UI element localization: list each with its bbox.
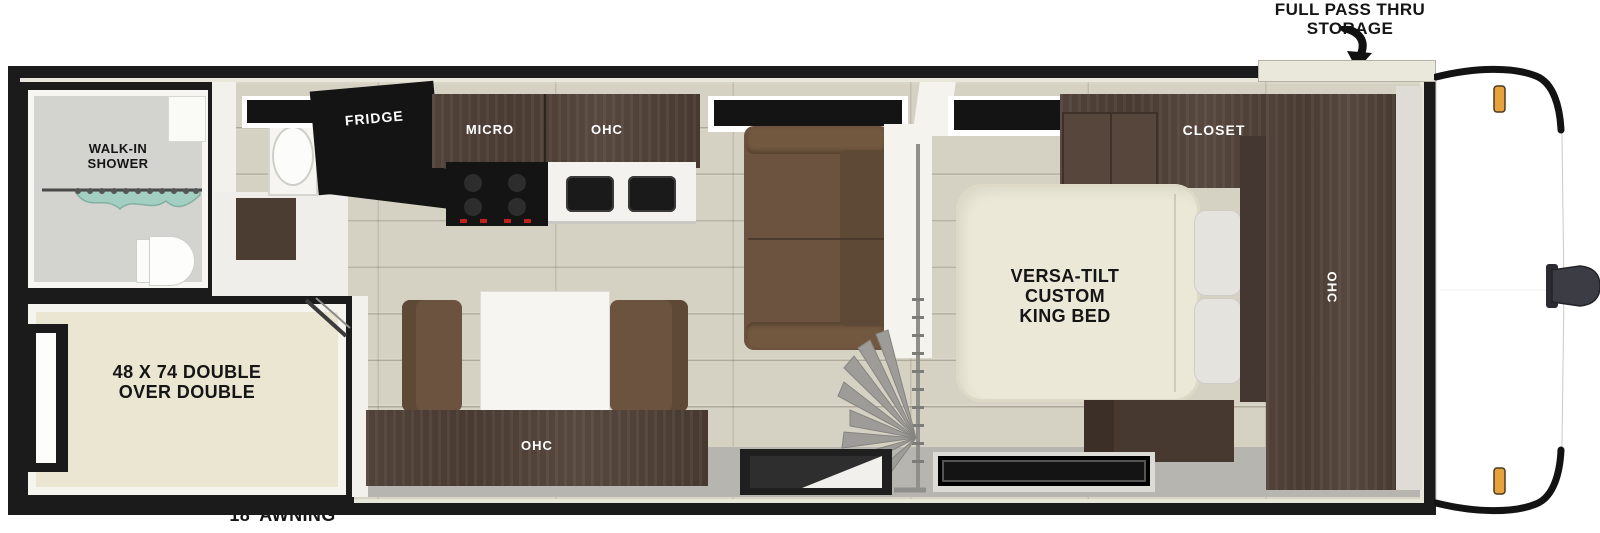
kitchen-overhead-cabinets: MICRO OHC — [432, 94, 700, 168]
dinette-bench-left — [402, 300, 462, 412]
bunk-bed-label: 48 X 74 DOUBLE OVER DOUBLE — [56, 362, 318, 402]
kitchen-ohc-label: OHC — [552, 122, 662, 137]
closet-lower-cabinet — [1062, 112, 1158, 186]
bedroom-ohc-label: OHC — [1325, 266, 1340, 310]
marker-light-bottom — [1494, 468, 1505, 494]
fridge-label: FRIDGE — [312, 105, 437, 132]
entry-door — [740, 449, 892, 495]
kitchen-sink-right — [628, 176, 676, 212]
toilet — [136, 236, 194, 284]
bunk-window — [28, 324, 68, 472]
bedroom-window-bottom — [933, 452, 1155, 492]
shower-shelf — [168, 96, 206, 142]
shower-curtain-icon — [36, 182, 208, 234]
kitchen-sink-left — [566, 176, 614, 212]
king-bed-label: VERSA-TILT CUSTOM KING BED — [980, 266, 1150, 326]
front-cap — [1434, 64, 1600, 516]
dinette-ohc-label: OHC — [366, 438, 708, 453]
bunk-ladder-icon — [300, 296, 352, 342]
stove — [446, 162, 548, 226]
king-bed: VERSA-TILT CUSTOM KING BED — [956, 184, 1200, 402]
walk-in-shower-label: WALK-IN SHOWER — [38, 142, 198, 171]
hitch-coupler — [1552, 266, 1600, 306]
bedroom-ohc-cabinet: OHC — [1266, 94, 1396, 490]
pass-thru-storage-compartment — [1258, 60, 1436, 82]
kitchen-counter — [548, 162, 696, 224]
dinette-table — [480, 291, 610, 411]
front-wall-band — [1396, 86, 1422, 490]
marker-light-top — [1494, 86, 1505, 112]
floorplan-page: { "diagram_type": "rv-travel-trailer-flo… — [0, 0, 1600, 533]
privacy-curtain-icon — [828, 138, 930, 500]
micro-label: MICRO — [440, 122, 540, 137]
vanity-cabinet — [236, 198, 296, 260]
dinette-bench-right — [610, 300, 688, 412]
dinette-ohc: OHC — [366, 410, 708, 486]
bathroom-sink-bowl — [272, 126, 314, 186]
pillow-top — [1194, 210, 1242, 296]
pillow-bottom — [1194, 298, 1242, 384]
